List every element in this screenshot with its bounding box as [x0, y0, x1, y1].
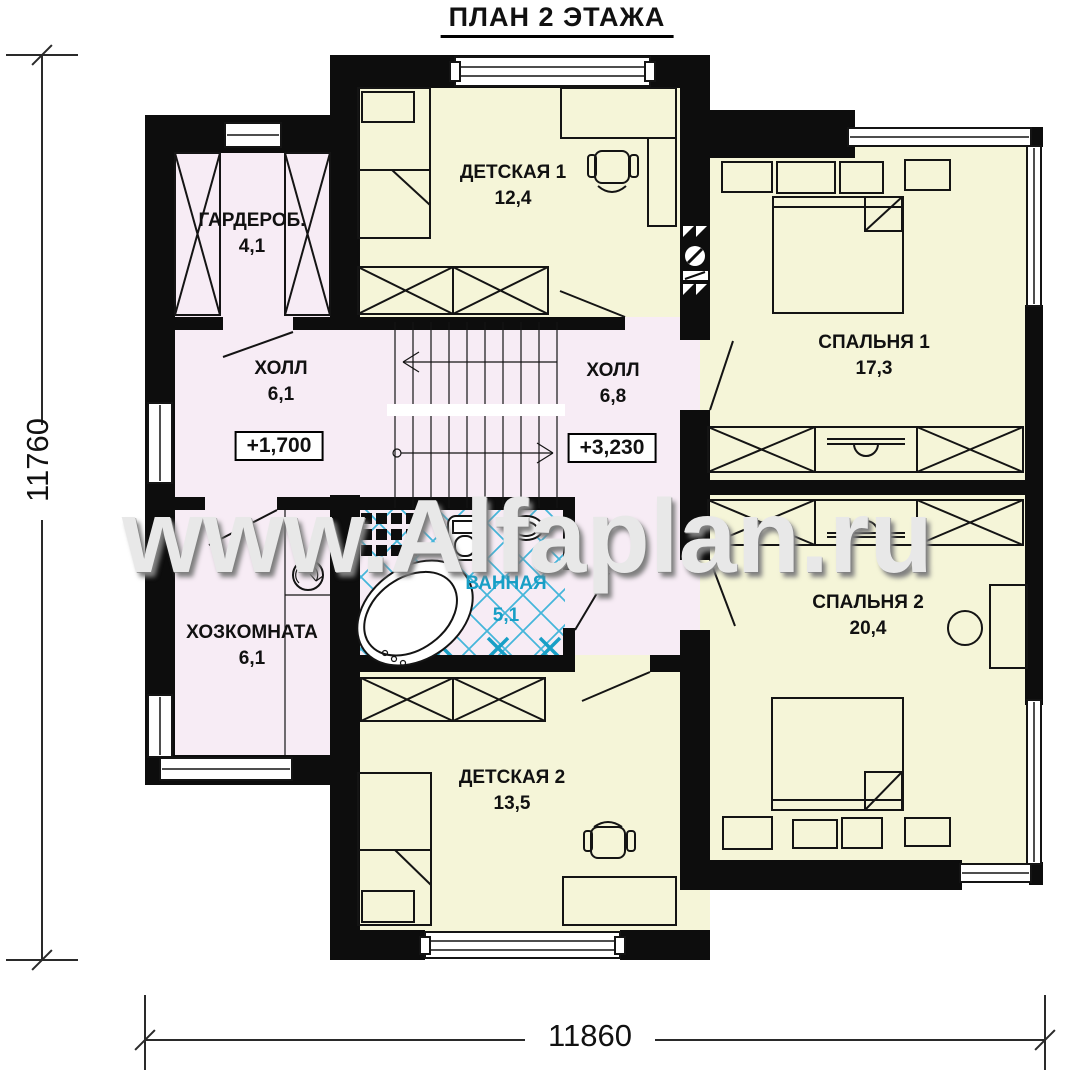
room-name: ХОЛЛ	[254, 356, 307, 382]
room-name: СПАЛЬНЯ 1	[818, 330, 930, 356]
label-utility-room: ХОЗКОМНАТА 6,1	[186, 620, 318, 671]
room-name: ДЕТСКАЯ 2	[459, 765, 565, 791]
watermark: www.Alfaplan.ru	[122, 478, 933, 597]
level-mark-hall1: +1,700	[235, 431, 324, 461]
room-area: 6,8	[586, 384, 639, 410]
dim-line-bottom-a	[145, 1039, 525, 1041]
label-bedroom2: СПАЛЬНЯ 2 20,4	[812, 590, 924, 641]
room-area: 6,1	[186, 646, 318, 672]
label-hall1: ХОЛЛ 6,1	[254, 356, 307, 407]
room-area: 20,4	[812, 616, 924, 642]
dim-line-left-lower	[41, 520, 43, 960]
label-wardrobe-room: ГАРДЕРОБ. 4,1	[198, 208, 305, 259]
dim-ext-line-bottom-a	[144, 995, 146, 1070]
room-area: 12,4	[460, 186, 566, 212]
room-area: 5,1	[465, 603, 546, 629]
room-name: ДЕТСКАЯ 1	[460, 160, 566, 186]
level-mark-hall2: +3,230	[568, 433, 657, 463]
page-title: ПЛАН 2 ЭТАЖА	[441, 2, 674, 38]
dim-label-bottom: 11860	[505, 1018, 675, 1054]
room-name: ХОЛЛ	[586, 358, 639, 384]
room-area: 6,1	[254, 382, 307, 408]
room-area: 13,5	[459, 791, 565, 817]
dim-ext-line-bottom-b	[1044, 995, 1046, 1070]
dim-line-left-upper	[41, 55, 43, 425]
room-name: ХОЗКОМНАТА	[186, 620, 318, 646]
label-hall2: ХОЛЛ 6,8	[586, 358, 639, 409]
room-area: 17,3	[818, 356, 930, 382]
label-kidsroom2: ДЕТСКАЯ 2 13,5	[459, 765, 565, 816]
label-kidsroom1: ДЕТСКАЯ 1 12,4	[460, 160, 566, 211]
page: { "title": "ПЛАН 2 ЭТАЖА", "watermark": …	[0, 0, 1080, 1080]
dim-label-left: 11760	[18, 385, 58, 535]
label-bedroom1: СПАЛЬНЯ 1 17,3	[818, 330, 930, 381]
room-area: 4,1	[198, 234, 305, 260]
room-name: ГАРДЕРОБ.	[198, 208, 305, 234]
dim-ext-line-bottom-left	[6, 959, 78, 961]
dim-line-bottom-b	[655, 1039, 1045, 1041]
